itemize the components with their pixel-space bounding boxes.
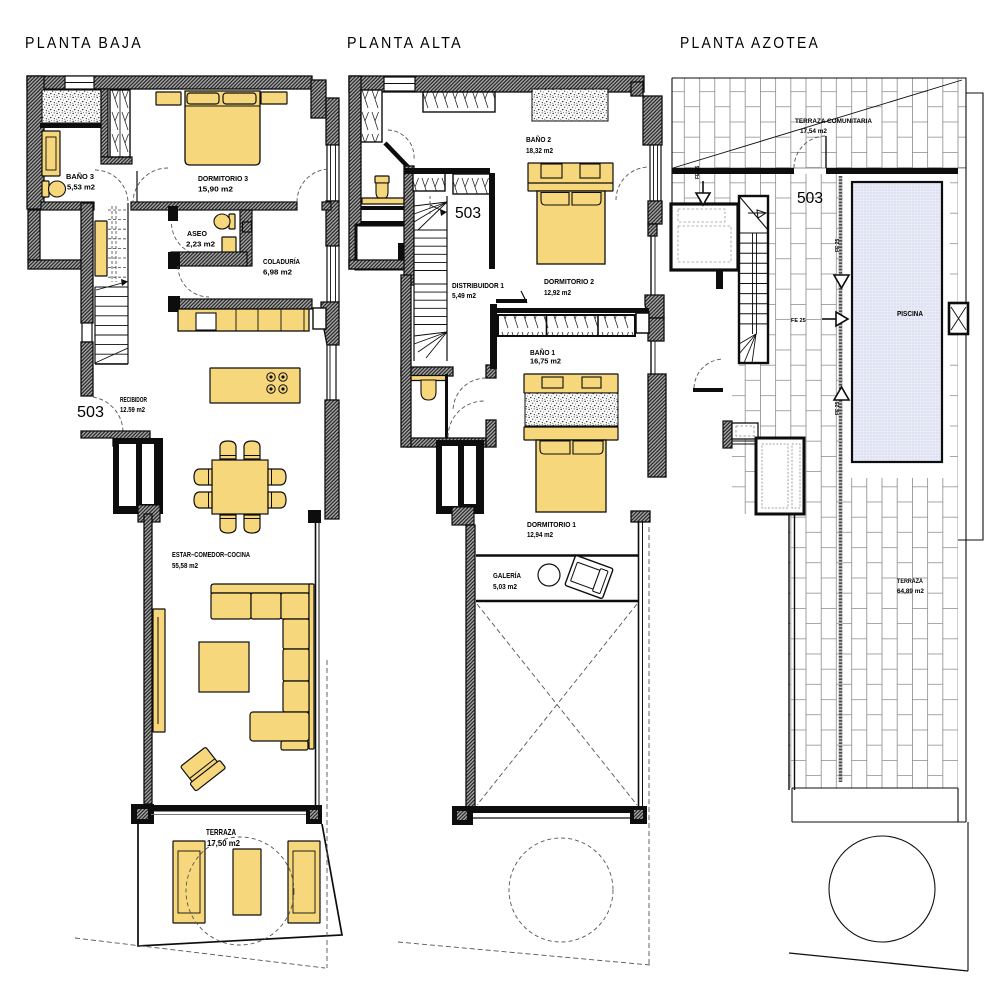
svg-text:5,03 m2: 5,03 m2 [493, 582, 517, 591]
svg-text:DORMITORIO 3: DORMITORIO 3 [198, 174, 248, 183]
svg-text:64,89 m2: 64,89 m2 [897, 588, 924, 595]
svg-text:FE 25: FE 25 [835, 238, 841, 252]
svg-text:12,92 m2: 12,92 m2 [544, 288, 571, 297]
svg-text:15,90 m2: 15,90 m2 [198, 185, 233, 194]
svg-text:ASEO: ASEO [187, 229, 207, 238]
svg-text:FE 25: FE 25 [791, 318, 806, 324]
svg-text:COLADURÍA: COLADURÍA [263, 257, 300, 266]
svg-text:503: 503 [77, 404, 104, 421]
svg-text:TERRAZA: TERRAZA [206, 827, 236, 837]
svg-text:503: 503 [797, 190, 823, 207]
svg-text:PLANTA ALTA: PLANTA ALTA [347, 35, 463, 52]
svg-text:12,94 m2: 12,94 m2 [527, 530, 553, 539]
svg-text:TERRAZA: TERRAZA [897, 578, 923, 585]
svg-text:TERRAZA COMUNITARIA: TERRAZA COMUNITARIA [795, 118, 872, 125]
svg-text:6,98 m2: 6,98 m2 [263, 268, 292, 277]
svg-text:ESTAR–COMEDOR–COCINA: ESTAR–COMEDOR–COCINA [172, 550, 250, 559]
svg-text:16,75 m2: 16,75 m2 [530, 357, 561, 366]
svg-text:BAÑO 3: BAÑO 3 [66, 172, 94, 181]
svg-text:DORMITORIO 2: DORMITORIO 2 [544, 277, 594, 286]
svg-text:17,54 m2: 17,54 m2 [800, 128, 827, 135]
svg-text:DORMITORIO 1: DORMITORIO 1 [527, 520, 576, 529]
svg-text:5,53 m2: 5,53 m2 [67, 183, 95, 192]
svg-text:55,58 m2: 55,58 m2 [172, 561, 198, 570]
svg-text:2,23 m2: 2,23 m2 [186, 240, 215, 249]
svg-text:BAÑO 2: BAÑO 2 [526, 135, 551, 144]
svg-text:12.59 m2: 12.59 m2 [120, 405, 145, 414]
svg-text:5,49 m2: 5,49 m2 [452, 291, 476, 300]
svg-text:PLANTA BAJA: PLANTA BAJA [25, 35, 143, 52]
svg-text:DISTRIBUIDOR 1: DISTRIBUIDOR 1 [452, 281, 504, 290]
svg-text:GALERÍA: GALERÍA [493, 571, 521, 580]
svg-text:17,50 m2: 17,50 m2 [207, 838, 240, 848]
svg-text:PISCINA: PISCINA [897, 311, 923, 318]
svg-text:503: 503 [455, 205, 481, 222]
svg-text:FE 25: FE 25 [835, 401, 841, 415]
svg-text:PLANTA AZOTEA: PLANTA AZOTEA [680, 35, 820, 52]
svg-text:FE 25: FE 25 [695, 165, 701, 179]
svg-text:RECIBIDOR: RECIBIDOR [120, 395, 147, 404]
svg-text:18,32 m2: 18,32 m2 [526, 146, 553, 155]
